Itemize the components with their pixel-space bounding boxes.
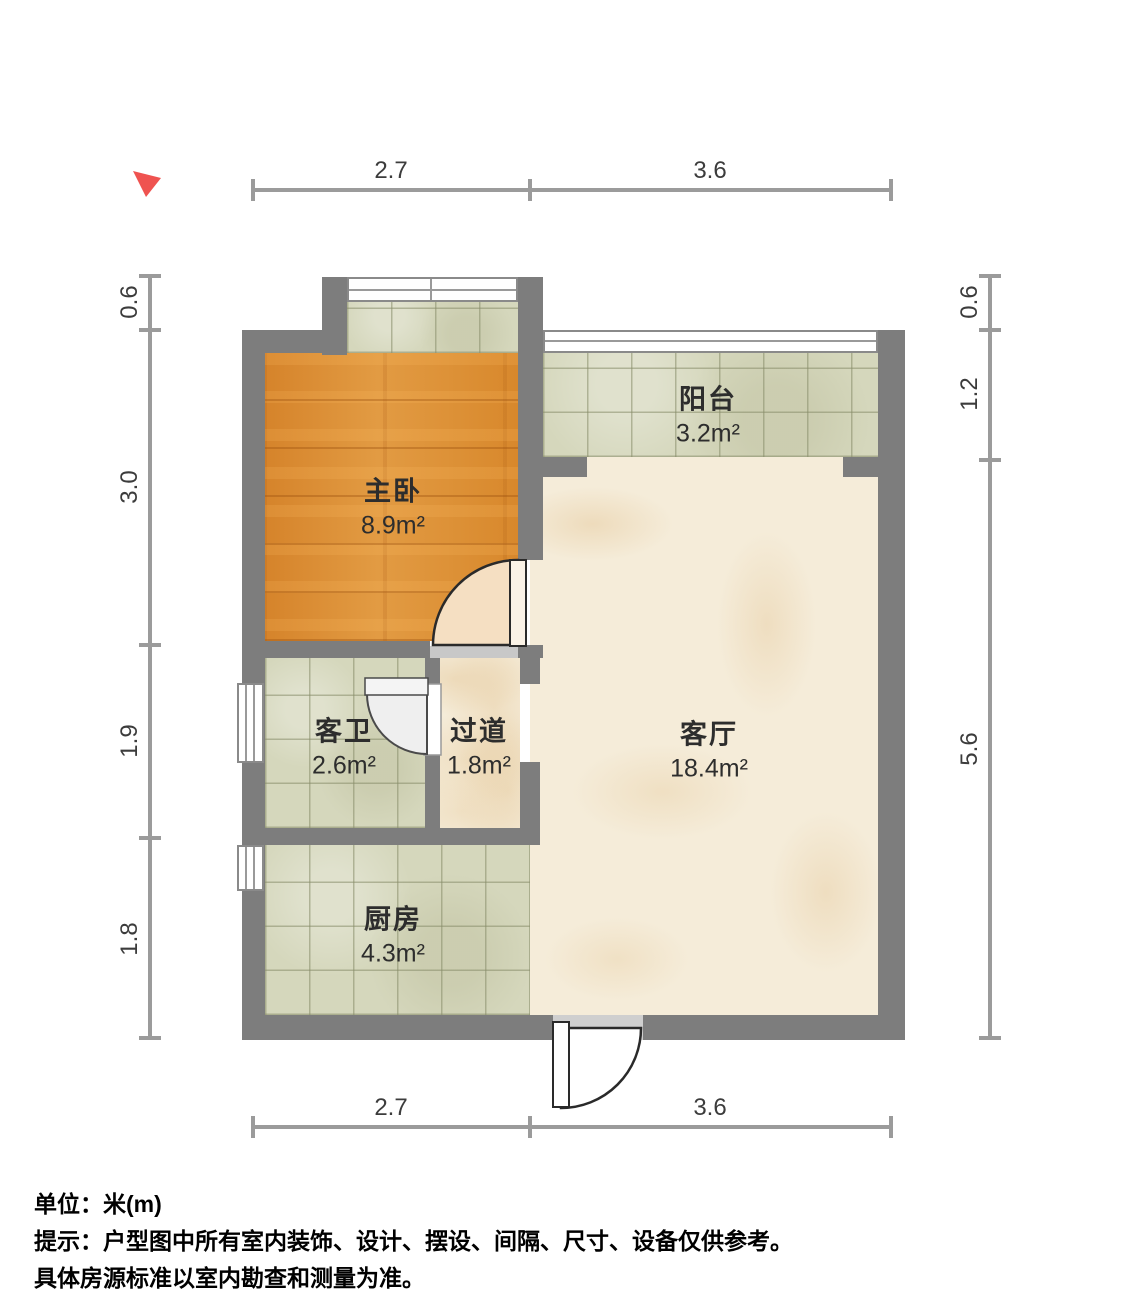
- dim-line-top: [253, 188, 891, 192]
- bay-window: [347, 277, 518, 302]
- bay-window-mullion: [349, 289, 516, 291]
- kitchen-window-mullion: [245, 847, 247, 889]
- room-name: 厨房: [361, 898, 425, 937]
- dim-value: 3.0: [116, 452, 144, 522]
- dim-tick: [528, 1116, 532, 1138]
- dim-line-left: [148, 276, 152, 1040]
- bathroom-right-wall: [425, 658, 440, 828]
- north-arrow-icon: [133, 171, 161, 197]
- dim-tick: [979, 458, 1001, 462]
- balcony-label: 阳台 3.2m²: [676, 378, 740, 449]
- bay-window-divider: [430, 279, 432, 300]
- dim-value: 2.7: [331, 157, 451, 185]
- dim-value: 1.2: [956, 359, 984, 429]
- wall-right: [878, 330, 905, 1040]
- legend-text: 单位：米(m) 提示：户型图中所有室内装饰、设计、摆设、间隔、尺寸、设备仅供参考…: [34, 1186, 793, 1297]
- tip-line-1: 提示：户型图中所有室内装饰、设计、摆设、间隔、尺寸、设备仅供参考。: [34, 1223, 793, 1260]
- bathroom-label: 客卫 2.6m²: [312, 710, 376, 781]
- kitchen-window-mullion: [253, 847, 255, 889]
- floorplan-canvas: 主卧 8.9m² 阳台 3.2m² 客卫 2.6m² 过道 1.8m² 客厅 1…: [0, 0, 1144, 1316]
- dim-tick: [528, 179, 532, 201]
- entrance-door-opening: [553, 1015, 643, 1040]
- bedroom-right-wall: [518, 277, 543, 560]
- bedroom-door-threshold: [430, 646, 518, 658]
- room-name: 阳台: [676, 378, 740, 417]
- room-name: 主卧: [361, 470, 425, 509]
- unit-line: 单位：米(m): [34, 1186, 793, 1223]
- wall-top: [242, 330, 325, 353]
- dim-tick: [889, 1116, 893, 1138]
- dim-value: 1.9: [116, 706, 144, 776]
- room-name: 客卫: [312, 710, 376, 749]
- room-area: 18.4m²: [670, 755, 748, 784]
- dim-tick: [139, 1036, 161, 1040]
- room-name: 客厅: [670, 713, 748, 752]
- dim-value: 1.8: [116, 904, 144, 974]
- bathroom-window: [237, 683, 264, 763]
- hallway-right-wall-lower: [520, 762, 540, 828]
- room-area: 3.2m²: [676, 420, 740, 449]
- dim-tick: [139, 836, 161, 840]
- kitchen-top-wall: [242, 828, 540, 845]
- tip-line-2: 具体房源标准以室内勘查和测量为准。: [34, 1260, 793, 1297]
- kitchen-window: [237, 845, 264, 891]
- dim-line-bottom: [253, 1125, 891, 1129]
- balcony-window-mullion: [545, 340, 876, 342]
- bathroom-window-mullion: [253, 685, 255, 761]
- dim-value: 0.6: [956, 267, 984, 337]
- dim-value: 0.6: [116, 267, 144, 337]
- bedroom-label: 主卧 8.9m²: [361, 470, 425, 541]
- hallway-right-wall-upper: [520, 658, 540, 684]
- balcony-window: [543, 330, 878, 353]
- room-area: 4.3m²: [361, 940, 425, 969]
- dim-tick: [251, 179, 255, 201]
- dim-tick: [251, 1116, 255, 1138]
- dim-value: 2.7: [331, 1094, 451, 1122]
- dim-value: 3.6: [650, 157, 770, 185]
- balcony-stub-right: [843, 457, 878, 477]
- room-area: 1.8m²: [447, 752, 511, 781]
- room-name: 过道: [447, 710, 511, 749]
- balcony-stub-left: [543, 457, 587, 477]
- kitchen-label: 厨房 4.3m²: [361, 898, 425, 969]
- bedroom-door-corner: [518, 645, 543, 658]
- bay-window-stub-left: [322, 277, 347, 355]
- dim-tick: [139, 643, 161, 647]
- bathroom-window-mullion: [245, 685, 247, 761]
- bedroom-bottom-wall: [242, 641, 430, 658]
- dim-value: 5.6: [956, 714, 984, 784]
- room-area: 2.6m²: [312, 752, 376, 781]
- living-room-label: 客厅 18.4m²: [670, 713, 748, 784]
- room-area: 8.9m²: [361, 512, 425, 541]
- dim-tick: [889, 179, 893, 201]
- dim-value: 3.6: [650, 1094, 770, 1122]
- hallway-label: 过道 1.8m²: [447, 710, 511, 781]
- dim-tick: [979, 1036, 1001, 1040]
- bay-window-sill: [347, 300, 518, 353]
- entrance-door-swing: [561, 1028, 641, 1108]
- dim-line-right: [988, 276, 992, 1040]
